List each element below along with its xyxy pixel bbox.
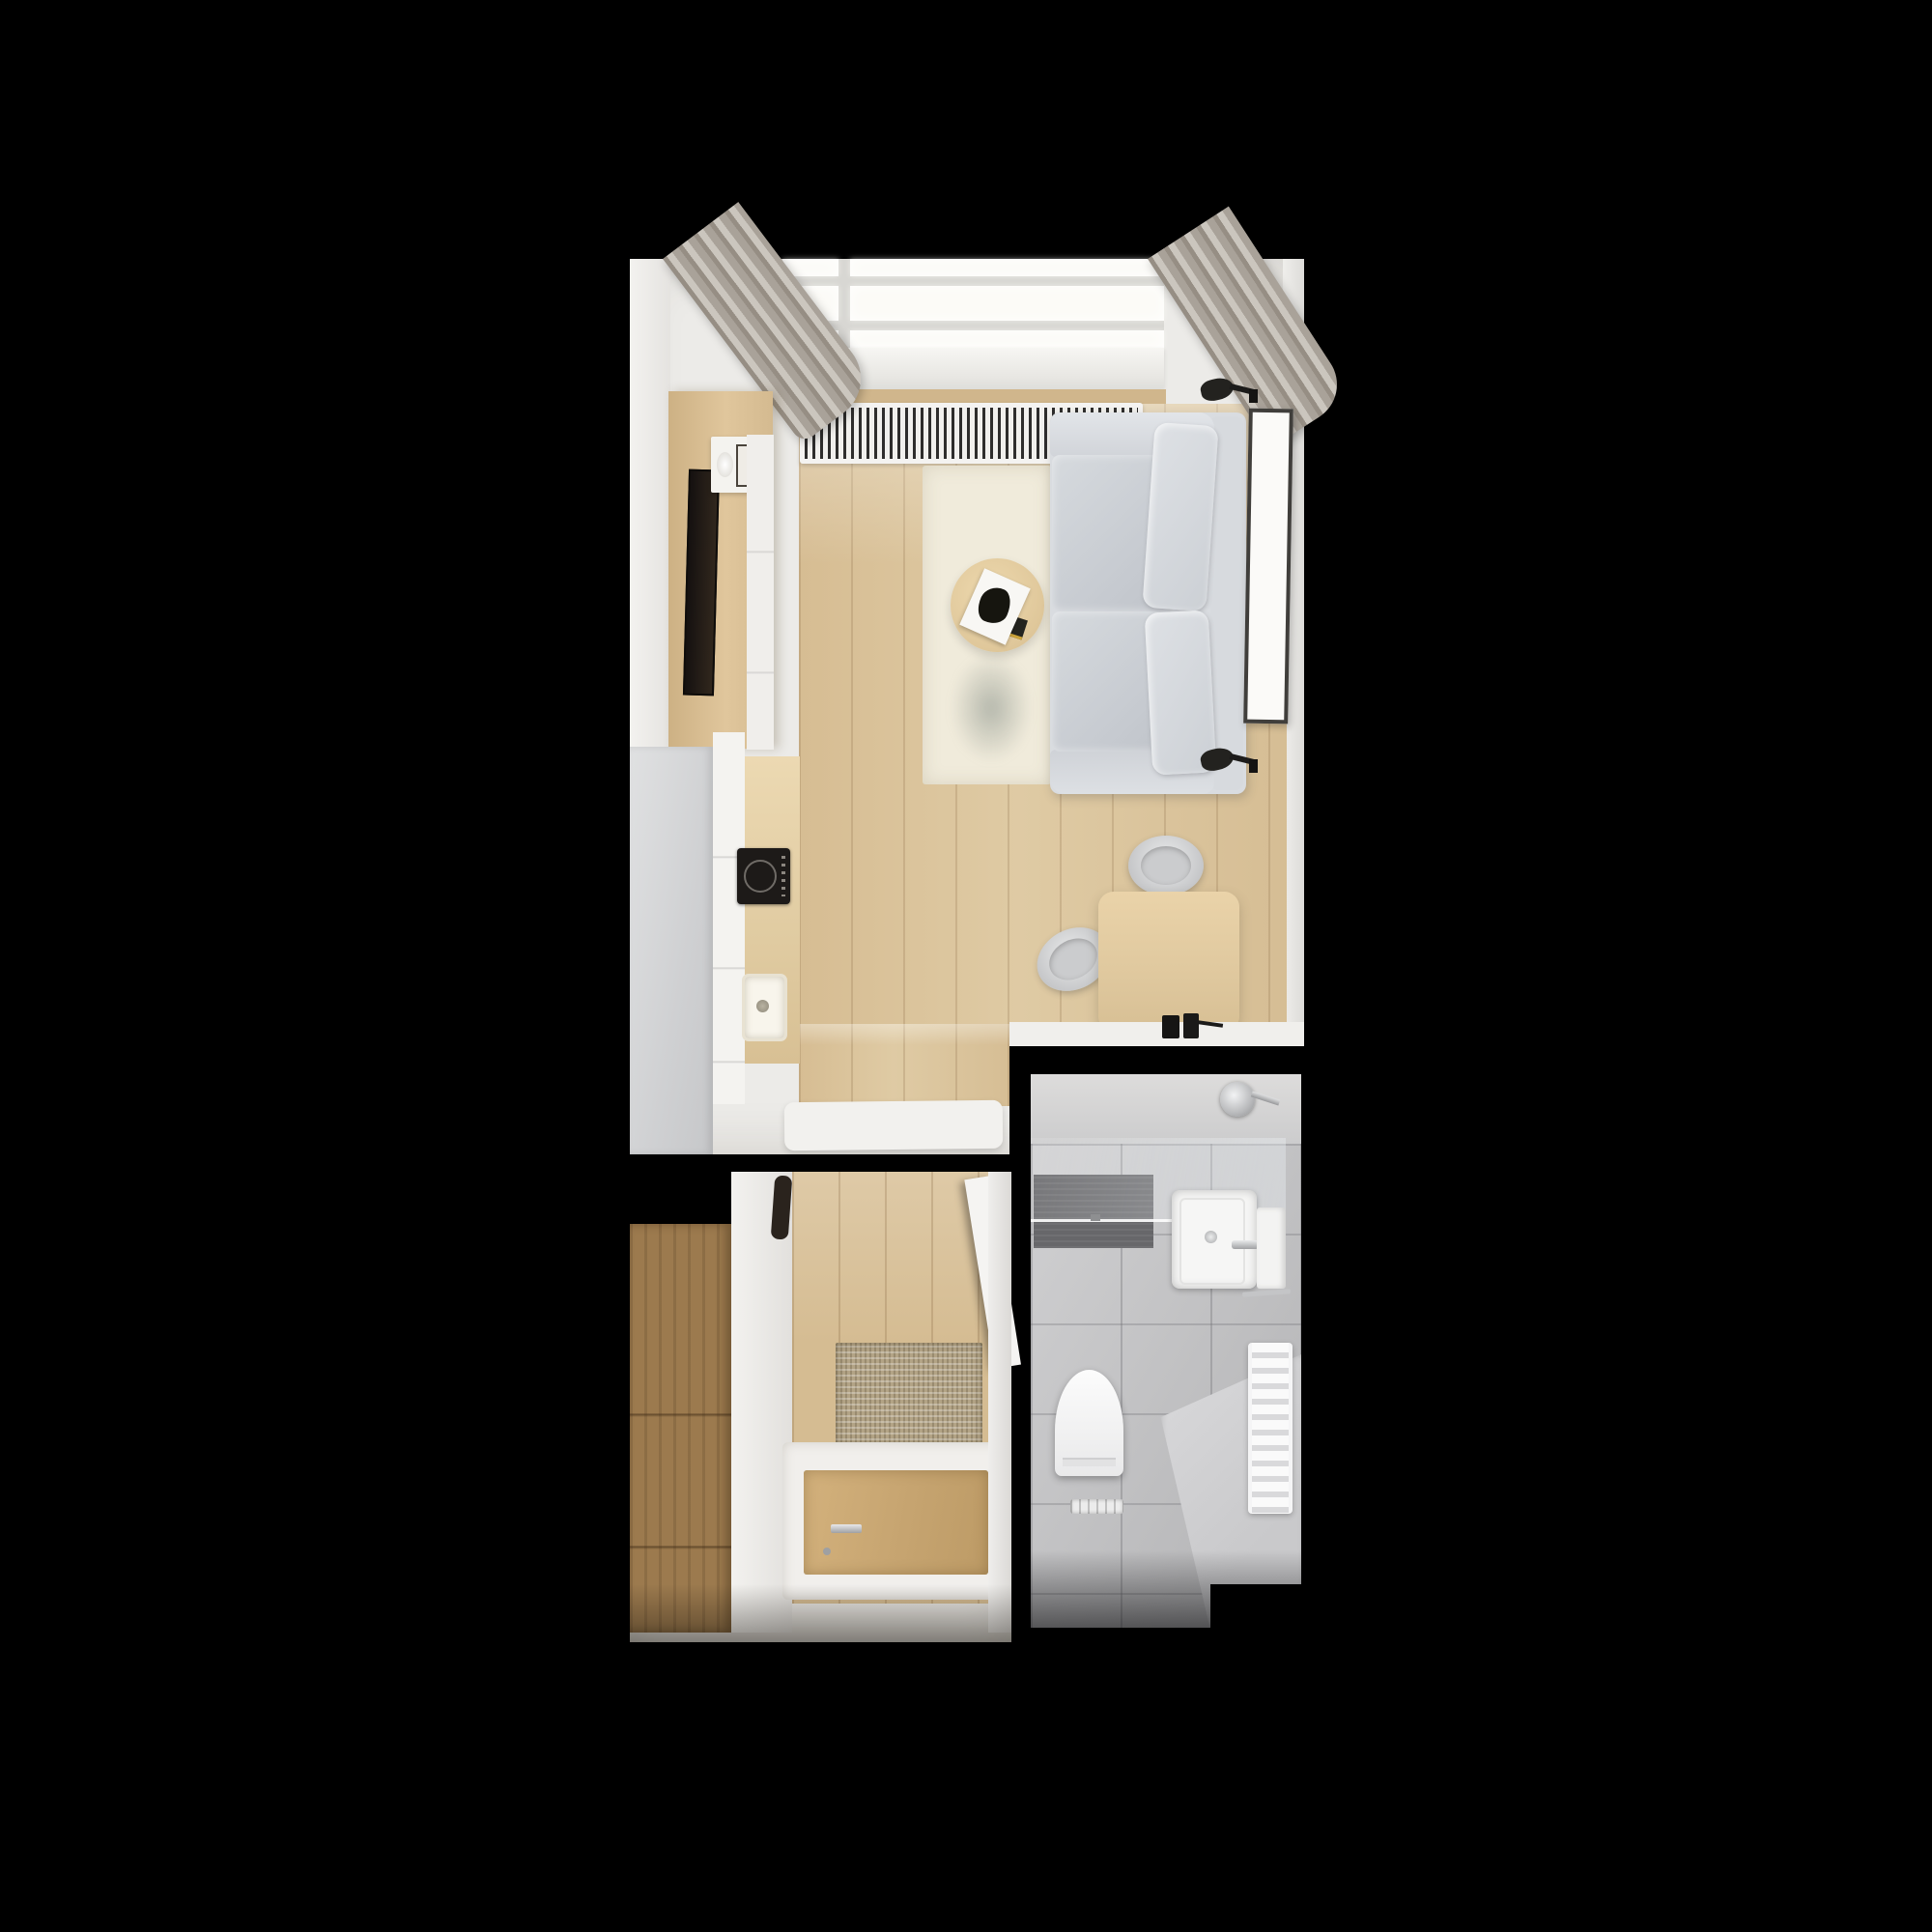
- tv: [683, 469, 720, 696]
- back-pillow: [1142, 422, 1218, 611]
- bathroom: [1031, 1074, 1301, 1628]
- window-pane: [850, 286, 1164, 321]
- living-room: [630, 259, 1304, 1154]
- wall-void: [1210, 1584, 1301, 1628]
- cooktop-burner-ring: [744, 860, 777, 893]
- lamp-tip: [1249, 389, 1258, 403]
- skylight-window: [782, 259, 1164, 348]
- hall-right-wall: [988, 1172, 1011, 1633]
- entry-door-leaf: [804, 1470, 988, 1575]
- bathroom-top-wall: [1031, 1074, 1301, 1144]
- towel-radiator: [1248, 1343, 1293, 1514]
- sofa: [1050, 412, 1246, 794]
- side-cabinet: [1257, 1207, 1286, 1289]
- window-pane: [850, 259, 1164, 276]
- doormat: [836, 1343, 982, 1446]
- lamp-tip: [1249, 759, 1258, 773]
- apartment-render: [0, 0, 1932, 1932]
- sink-drain: [756, 1000, 769, 1012]
- floor-white-band: [1009, 1022, 1304, 1046]
- wall-lamp-top: [1201, 377, 1259, 410]
- faucet: [1232, 1240, 1259, 1249]
- entry-hallway: [630, 1172, 1011, 1642]
- window-pane: [850, 330, 1164, 348]
- cooktop-controls: [781, 856, 785, 896]
- shadow-fade: [630, 1584, 1011, 1642]
- desk-chair-top: [1128, 836, 1204, 895]
- fridge-cabinet: [630, 747, 713, 1154]
- glass-clamp: [1091, 1214, 1100, 1221]
- shower-mixer: [1220, 1082, 1255, 1117]
- chair-seat: [1042, 930, 1105, 988]
- chair-seat: [1141, 846, 1191, 885]
- desk-lamp-base: [1183, 1013, 1199, 1038]
- kitchen-sink: [742, 974, 787, 1041]
- induction-cooktop: [737, 848, 790, 904]
- sink-vanity: [1172, 1190, 1257, 1289]
- table-shadow: [935, 632, 1047, 784]
- wall-void: [630, 1172, 731, 1224]
- door-hinge: [823, 1548, 831, 1555]
- kitchen-counter-white: [713, 732, 745, 1104]
- toilet-seat-hinge: [1063, 1458, 1116, 1466]
- desk: [1098, 892, 1239, 1032]
- linear-floor-drain: [1070, 1499, 1123, 1514]
- door-handle: [831, 1524, 862, 1533]
- white-cabinet-column: [747, 435, 774, 750]
- threshold-bench: [784, 1100, 1004, 1151]
- wood-floor-lower: [799, 1024, 1009, 1106]
- picture-frame: [1243, 409, 1293, 724]
- desk-lamp: [1162, 1015, 1179, 1038]
- magazine-cover-art: [973, 582, 1016, 629]
- wardrobe: [630, 1224, 731, 1633]
- vanity-knob: [1205, 1231, 1217, 1243]
- entry-door-frame: [782, 1442, 1008, 1600]
- vase: [717, 452, 733, 477]
- wall-lamp-bottom: [1201, 747, 1261, 776]
